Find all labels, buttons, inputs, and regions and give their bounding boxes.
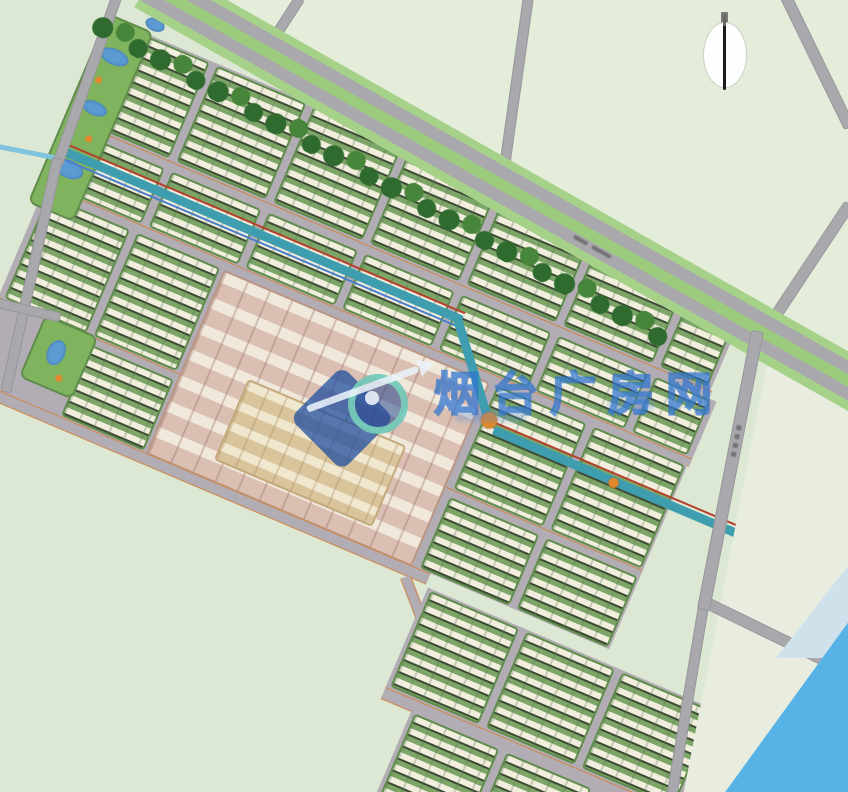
watermark-logo-lens-core-icon bbox=[365, 391, 379, 405]
masterplan-map: 烟台广房网 bbox=[0, 0, 848, 792]
compass bbox=[700, 10, 750, 105]
arterial-road-label-illegible-icon bbox=[591, 245, 612, 259]
arterial-road-label-illegible-icon bbox=[573, 234, 589, 245]
watermark-subtext-illegible-icon bbox=[455, 410, 525, 422]
watermark-subtext-illegible-icon bbox=[608, 400, 654, 410]
road-west bbox=[1, 158, 61, 392]
watermark: 烟台广房网 bbox=[312, 348, 732, 478]
canal-topleft bbox=[0, 144, 59, 161]
north-needle-icon bbox=[723, 14, 726, 90]
